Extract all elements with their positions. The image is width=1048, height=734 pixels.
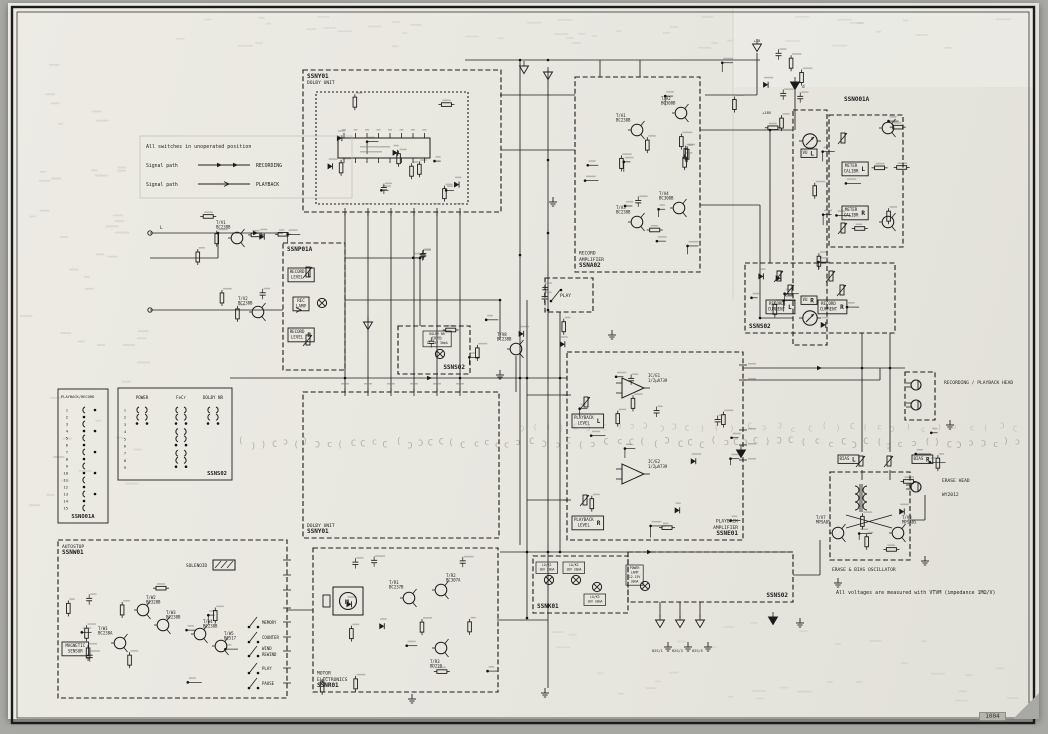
- svg-text:MAGNETIC: MAGNETIC: [65, 643, 85, 648]
- svg-text:PLAYBACK: PLAYBACK: [574, 517, 594, 522]
- svg-text:1: 1: [66, 408, 69, 413]
- svg-text:M: M: [345, 598, 349, 606]
- svg-text:): ): [934, 438, 939, 448]
- svg-text:CURRENT: CURRENT: [820, 307, 838, 312]
- svg-text:BC238B: BC238B: [616, 118, 631, 123]
- svg-text:R: R: [926, 456, 930, 463]
- svg-text:BC308B: BC308B: [661, 101, 676, 106]
- svg-text:(: (: [983, 423, 988, 432]
- svg-text:(: (: [533, 423, 538, 432]
- svg-text:(: (: [863, 423, 868, 432]
- svg-text:ERASE & BIAS OSCILLATOR: ERASE & BIAS OSCILLATOR: [832, 567, 896, 573]
- svg-text:C: C: [382, 441, 387, 451]
- svg-text:R: R: [861, 210, 865, 217]
- svg-text:Ɔ: Ɔ: [777, 436, 782, 446]
- svg-text:COUNTER: COUNTER: [262, 635, 279, 640]
- svg-text:MEMORY: MEMORY: [262, 620, 277, 625]
- svg-text:DOLBY NR: DOLBY NR: [203, 395, 224, 400]
- svg-text:MPSA05: MPSA05: [902, 520, 917, 525]
- svg-text:LEVEL: LEVEL: [578, 523, 591, 528]
- svg-text:L: L: [810, 150, 814, 157]
- svg-text:SSNS02: SSNS02: [749, 323, 771, 330]
- svg-text:30mA: 30mA: [631, 579, 639, 583]
- svg-text:C: C: [699, 441, 704, 451]
- svg-text:SSNS02: SSNS02: [207, 471, 227, 477]
- svg-text:12-15V 30mA: 12-15V 30mA: [427, 341, 448, 345]
- svg-text:(: (: [714, 423, 719, 432]
- svg-text:): ): [836, 424, 841, 433]
- svg-text:5: 5: [124, 437, 126, 441]
- svg-text:C: C: [360, 439, 365, 449]
- svg-text:Ɔ: Ɔ: [664, 437, 669, 447]
- svg-text:Ɔ: Ɔ: [672, 422, 677, 431]
- svg-text:BD220: BD220: [430, 664, 443, 669]
- svg-text:(: (: [877, 438, 882, 448]
- svg-text:BIAS: BIAS: [839, 456, 849, 461]
- svg-text:MPSA05: MPSA05: [816, 520, 831, 525]
- svg-text:ɔ: ɔ: [724, 438, 729, 448]
- svg-text:REC: REC: [297, 298, 305, 303]
- svg-text:SOLENOID: SOLENOID: [186, 563, 208, 569]
- svg-text:): ): [261, 441, 266, 451]
- svg-text:18V 30mA: 18V 30mA: [539, 568, 554, 572]
- svg-text:): ): [937, 422, 942, 431]
- svg-text:RECORD: RECORD: [290, 329, 305, 334]
- svg-text:C: C: [753, 437, 758, 447]
- svg-text:LEVEL: LEVEL: [291, 335, 304, 340]
- svg-text:ɔ: ɔ: [952, 422, 957, 431]
- block-SSNS02: SSNS02: [745, 263, 895, 333]
- svg-text:Ɔ: Ɔ: [315, 441, 320, 451]
- svg-text:C: C: [850, 422, 855, 431]
- svg-text:7: 7: [124, 452, 126, 456]
- svg-text:C: C: [1013, 424, 1018, 433]
- svg-text:FeCr: FeCr: [176, 395, 187, 400]
- svg-text:C: C: [428, 438, 433, 448]
- svg-text:C: C: [678, 440, 683, 450]
- svg-text:H2S/5: H2S/5: [692, 649, 703, 653]
- svg-text:ɔ: ɔ: [1015, 437, 1020, 447]
- svg-text:c: c: [815, 436, 820, 446]
- text-labels: RECORDLEVELLRECLAMPRECORDLEVELRVULVURMET…: [62, 96, 1013, 686]
- svg-text:SSNR01: SSNR01: [317, 682, 339, 689]
- svg-text:18V 30mA: 18V 30mA: [566, 568, 581, 572]
- svg-text:): ): [765, 438, 770, 448]
- svg-text:SSNY01: SSNY01: [307, 73, 329, 80]
- svg-text:LA/K2: LA/K2: [569, 563, 579, 567]
- board-blocks: SSNY01DOLBY UNITSSNP01ASSNS02RECORDAMPLI…: [58, 70, 935, 698]
- svg-text:BC308B: BC308B: [659, 196, 674, 201]
- svg-text:ɔ: ɔ: [968, 439, 973, 449]
- svg-text:c: c: [474, 439, 479, 449]
- svg-text:1: 1: [124, 409, 126, 413]
- svg-text:Ɔ: Ɔ: [407, 442, 412, 452]
- svg-text:CURRENT: CURRENT: [768, 307, 786, 312]
- switch-panels: PLAYBACK/RECORD123456789101112131415SSNO…: [58, 388, 232, 523]
- svg-text:BC238B: BC238B: [166, 615, 181, 620]
- svg-text:SSNA02: SSNA02: [579, 262, 601, 269]
- svg-text:(: (: [639, 437, 644, 447]
- svg-text:c: c: [877, 422, 882, 431]
- svg-text:): ): [1003, 437, 1008, 447]
- schematic-canvas: ())Cɔ()Ɔc(CCcC(ƆƆCC(CccccɔCƆɔC(ɔCcC((ƆCC…: [0, 0, 1048, 734]
- svg-text:C: C: [687, 439, 692, 449]
- svg-text:Ɔ: Ɔ: [643, 421, 648, 430]
- block-SSNA02: RECORDAMPLIFIERSSNA02: [575, 77, 700, 272]
- svg-text:L: L: [597, 418, 601, 425]
- svg-text:): ): [251, 442, 256, 452]
- svg-text:Ɔ: Ɔ: [852, 441, 857, 451]
- svg-text:8: 8: [66, 457, 69, 462]
- svg-text:Signal path: Signal path: [146, 182, 178, 188]
- flags-grounds: +18d: [364, 39, 955, 703]
- block-box16: [905, 372, 935, 420]
- svg-text:Ɔ: Ɔ: [890, 425, 895, 434]
- svg-text:ɔ: ɔ: [762, 423, 767, 432]
- svg-text:10: 10: [63, 471, 68, 476]
- svg-text:Ɔ: Ɔ: [418, 439, 423, 449]
- svg-text:c: c: [970, 424, 975, 433]
- svg-text:VU: VU: [803, 150, 808, 155]
- svg-text:METER: METER: [845, 163, 858, 168]
- svg-text:15: 15: [63, 506, 68, 511]
- svg-text:R: R: [840, 304, 844, 311]
- svg-text:RECORD: RECORD: [290, 269, 305, 274]
- legend: All switches in unoperated positionSigna…: [140, 136, 352, 198]
- svg-text:ɔ: ɔ: [911, 439, 916, 449]
- block-SSNR01: MOTORELECTRONICSSSNR01: [313, 548, 498, 692]
- svg-text:): ): [700, 424, 705, 433]
- sheet-number-tag: 1004: [979, 712, 1006, 721]
- svg-text:LA/K3: LA/K3: [590, 595, 600, 599]
- svg-text:C: C: [733, 438, 738, 448]
- svg-text:RECORDING: RECORDING: [256, 163, 282, 169]
- svg-text:1/2µA739: 1/2µA739: [648, 464, 668, 469]
- svg-text:(: (: [801, 438, 806, 448]
- svg-text:C: C: [439, 437, 444, 447]
- svg-text:c: c: [828, 440, 833, 450]
- svg-text:METER: METER: [845, 207, 858, 212]
- svg-text:(: (: [293, 440, 298, 450]
- svg-text:SSNO01A: SSNO01A: [71, 514, 95, 520]
- svg-text:c: c: [327, 440, 332, 450]
- svg-text:SSNO01A: SSNO01A: [844, 96, 870, 103]
- svg-text:SSNY01: SSNY01: [307, 528, 329, 535]
- svg-text:C: C: [629, 438, 634, 448]
- svg-text:DOLBY UNIT: DOLBY UNIT: [307, 80, 335, 86]
- svg-text:): ): [906, 422, 911, 431]
- svg-text:ɔ: ɔ: [590, 440, 595, 450]
- svg-text:ɔ: ɔ: [886, 442, 891, 452]
- svg-text:13: 13: [63, 492, 68, 497]
- svg-text:CALIBR: CALIBR: [844, 169, 859, 174]
- svg-text:Signal path: Signal path: [146, 163, 178, 169]
- svg-text:c: c: [897, 440, 902, 450]
- block-box7: [829, 115, 903, 247]
- svg-text:C: C: [788, 436, 793, 446]
- svg-text:LAMP: LAMP: [631, 571, 639, 575]
- svg-text:Ɔ: Ɔ: [981, 439, 986, 449]
- svg-text:3: 3: [124, 423, 126, 427]
- svg-text:C: C: [460, 441, 465, 451]
- svg-text:c: c: [504, 440, 509, 450]
- components: T/V1BC238BT/V2BC238BT/V8BC238BT/A1BC238B…: [98, 96, 921, 669]
- svg-text:(: (: [337, 441, 342, 451]
- svg-text:RECORDING / PLAYBACK HEAD: RECORDING / PLAYBACK HEAD: [944, 380, 1013, 386]
- svg-text:Ɔ: Ɔ: [660, 424, 665, 433]
- svg-text:8: 8: [124, 459, 126, 463]
- scan-background: { "sheet": { "tag": "1004" }, "legend": …: [0, 0, 1048, 734]
- svg-text:C: C: [351, 439, 356, 449]
- svg-text:): ): [730, 424, 735, 433]
- svg-text:(: (: [238, 437, 243, 447]
- svg-text:3: 3: [66, 422, 68, 427]
- svg-text:WIND: WIND: [262, 646, 272, 651]
- svg-text:BC238B: BC238B: [216, 225, 231, 230]
- svg-text:BC238B: BC238B: [616, 210, 631, 215]
- svg-text:PAUSE: PAUSE: [262, 681, 275, 686]
- block-SSNY01: DOLBY UNITSSNY01: [303, 392, 499, 538]
- svg-text:Ɔ: Ɔ: [542, 440, 547, 450]
- svg-text:L: L: [788, 304, 792, 311]
- svg-text:RECORD: RECORD: [579, 251, 596, 257]
- svg-text:H2S/3: H2S/3: [672, 649, 683, 653]
- svg-text:RECORD: RECORD: [821, 301, 836, 306]
- panel-function-switches: POWERFeCrDOLBY NR123456789SSNS02: [118, 388, 232, 480]
- svg-text:All switches in unoperated pos: All switches in unoperated position: [146, 144, 251, 150]
- svg-text:WY2012: WY2012: [942, 492, 959, 498]
- svg-text:LAMP: LAMP: [296, 304, 306, 309]
- svg-text:(: (: [925, 437, 930, 447]
- svg-text:BC237B: BC237B: [389, 585, 404, 590]
- svg-text:c: c: [484, 438, 489, 448]
- svg-text:SSNP01A: SSNP01A: [287, 246, 313, 253]
- svg-text:PLAYBACK/RECORD: PLAYBACK/RECORD: [61, 395, 94, 399]
- svg-text:LEVEL: LEVEL: [578, 421, 591, 426]
- svg-text:C: C: [272, 440, 277, 450]
- svg-text:BC517: BC517: [224, 636, 237, 641]
- svg-text:L: L: [307, 272, 311, 279]
- svg-text:C: C: [603, 437, 608, 447]
- svg-text:BC307A: BC307A: [446, 578, 461, 583]
- svg-text:Ɔ: Ɔ: [777, 422, 782, 431]
- svg-text:ɔ: ɔ: [630, 421, 635, 430]
- panel-playback-record: PLAYBACK/RECORD123456789101112131415SSNO…: [58, 389, 108, 523]
- svg-text:POWER: POWER: [630, 566, 640, 570]
- svg-text:7: 7: [66, 450, 68, 455]
- svg-text:4: 4: [124, 430, 126, 434]
- svg-text:RECORD: RECORD: [769, 301, 784, 306]
- svg-text:(: (: [711, 436, 716, 446]
- svg-text:SSNS02: SSNS02: [443, 364, 465, 371]
- svg-text:REWIND: REWIND: [262, 652, 277, 657]
- svg-text:PLAYBACK: PLAYBACK: [716, 519, 738, 525]
- svg-text:BC238A: BC238A: [98, 631, 113, 636]
- svg-text:All voltages are measured with: All voltages are measured with VTVM (imp…: [836, 590, 996, 596]
- svg-text:c: c: [791, 425, 796, 434]
- svg-text:LA/K1: LA/K1: [542, 563, 552, 567]
- svg-text:2: 2: [66, 415, 68, 420]
- svg-text:BC238B: BC238B: [497, 337, 512, 342]
- svg-text:5: 5: [66, 436, 68, 441]
- svg-text:6: 6: [66, 443, 69, 448]
- svg-text:Ɔ: Ɔ: [520, 425, 525, 434]
- svg-text:(: (: [822, 421, 827, 430]
- svg-text:SENSOR: SENSOR: [68, 649, 83, 654]
- svg-text:BIAS: BIAS: [913, 456, 923, 461]
- svg-text:18V 30mA: 18V 30mA: [587, 600, 602, 604]
- block-SSNY01: SSNY01DOLBY UNIT: [303, 70, 501, 212]
- svg-text:2: 2: [124, 416, 126, 420]
- svg-text:): ): [618, 421, 623, 430]
- svg-text:Ɔ: Ɔ: [1000, 421, 1005, 430]
- svg-text:L: L: [160, 225, 163, 231]
- svg-text:C: C: [685, 424, 690, 433]
- svg-text:PLAYBACK: PLAYBACK: [574, 415, 594, 420]
- svg-text:MOTOR: MOTOR: [317, 671, 331, 677]
- svg-text:12: 12: [63, 485, 68, 490]
- svg-text:LA/S2: LA/S2: [432, 337, 442, 341]
- svg-text:12-15V: 12-15V: [629, 575, 641, 579]
- svg-text:L: L: [852, 456, 856, 463]
- svg-text:+18V: +18V: [762, 110, 772, 115]
- svg-text:c: c: [993, 440, 998, 450]
- svg-text:c: c: [372, 437, 377, 447]
- svg-text:L: L: [861, 166, 865, 173]
- svg-text:C: C: [529, 437, 534, 447]
- svg-text:6: 6: [124, 445, 126, 449]
- svg-text:c: c: [617, 437, 622, 447]
- svg-text:VU: VU: [803, 297, 808, 302]
- block-SSNS02: SSNS02: [628, 552, 793, 602]
- svg-text:SSNE01: SSNE01: [716, 530, 738, 537]
- svg-text:Ɔ: Ɔ: [956, 441, 961, 451]
- svg-text:ɔ: ɔ: [283, 437, 288, 447]
- svg-text:SSNS02: SSNS02: [766, 592, 788, 599]
- svg-text:11: 11: [63, 478, 68, 483]
- svg-text:R: R: [307, 332, 311, 339]
- svg-text:SSNK01: SSNK01: [537, 603, 559, 610]
- svg-text:CALIBR: CALIBR: [844, 213, 859, 218]
- svg-text:BC238B: BC238B: [203, 624, 218, 629]
- svg-text:PLAYBACK: PLAYBACK: [256, 182, 279, 188]
- svg-text:1/2µA739: 1/2µA739: [648, 378, 668, 383]
- svg-text:ERASE HEAD: ERASE HEAD: [942, 478, 970, 484]
- svg-text:BC328B: BC328B: [146, 600, 161, 605]
- svg-text:(: (: [578, 441, 583, 451]
- svg-text:C: C: [808, 424, 813, 433]
- svg-text:LEVEL: LEVEL: [291, 275, 304, 280]
- svg-text:9: 9: [66, 464, 69, 469]
- block-box1: [316, 92, 468, 204]
- svg-text:(: (: [448, 439, 453, 449]
- block-box15: [830, 472, 910, 560]
- svg-text:(: (: [396, 437, 401, 447]
- svg-text:DOLBY NR: DOLBY NR: [429, 332, 444, 336]
- svg-text:PLAY: PLAY: [262, 666, 272, 671]
- svg-text:14: 14: [63, 499, 68, 504]
- svg-text:R: R: [597, 520, 601, 527]
- svg-text:(: (: [653, 440, 658, 450]
- svg-text:H2S/1: H2S/1: [652, 649, 663, 653]
- svg-text:4: 4: [66, 429, 69, 434]
- svg-text:R: R: [810, 297, 814, 304]
- svg-text:9: 9: [124, 466, 126, 470]
- svg-text:C: C: [863, 437, 868, 447]
- svg-text:c: c: [921, 425, 926, 434]
- svg-text:C: C: [947, 440, 952, 450]
- block-SSNP01A: SSNP01A: [283, 243, 345, 370]
- paper-fold-corner: [1013, 693, 1039, 719]
- svg-text:POWER: POWER: [136, 395, 149, 400]
- ghost-print: ())Cɔ()Ɔc(CCcC(ƆƆCC(CccccɔCƆɔC(ɔCcC((ƆCC…: [20, 9, 1033, 701]
- svg-text:d: d: [802, 84, 805, 90]
- svg-text:BC238B: BC238B: [238, 301, 253, 306]
- svg-text:PLAY: PLAY: [560, 293, 571, 299]
- svg-text:SSNW01: SSNW01: [62, 549, 84, 556]
- svg-text:C: C: [841, 438, 846, 448]
- svg-text:+18: +18: [754, 39, 761, 43]
